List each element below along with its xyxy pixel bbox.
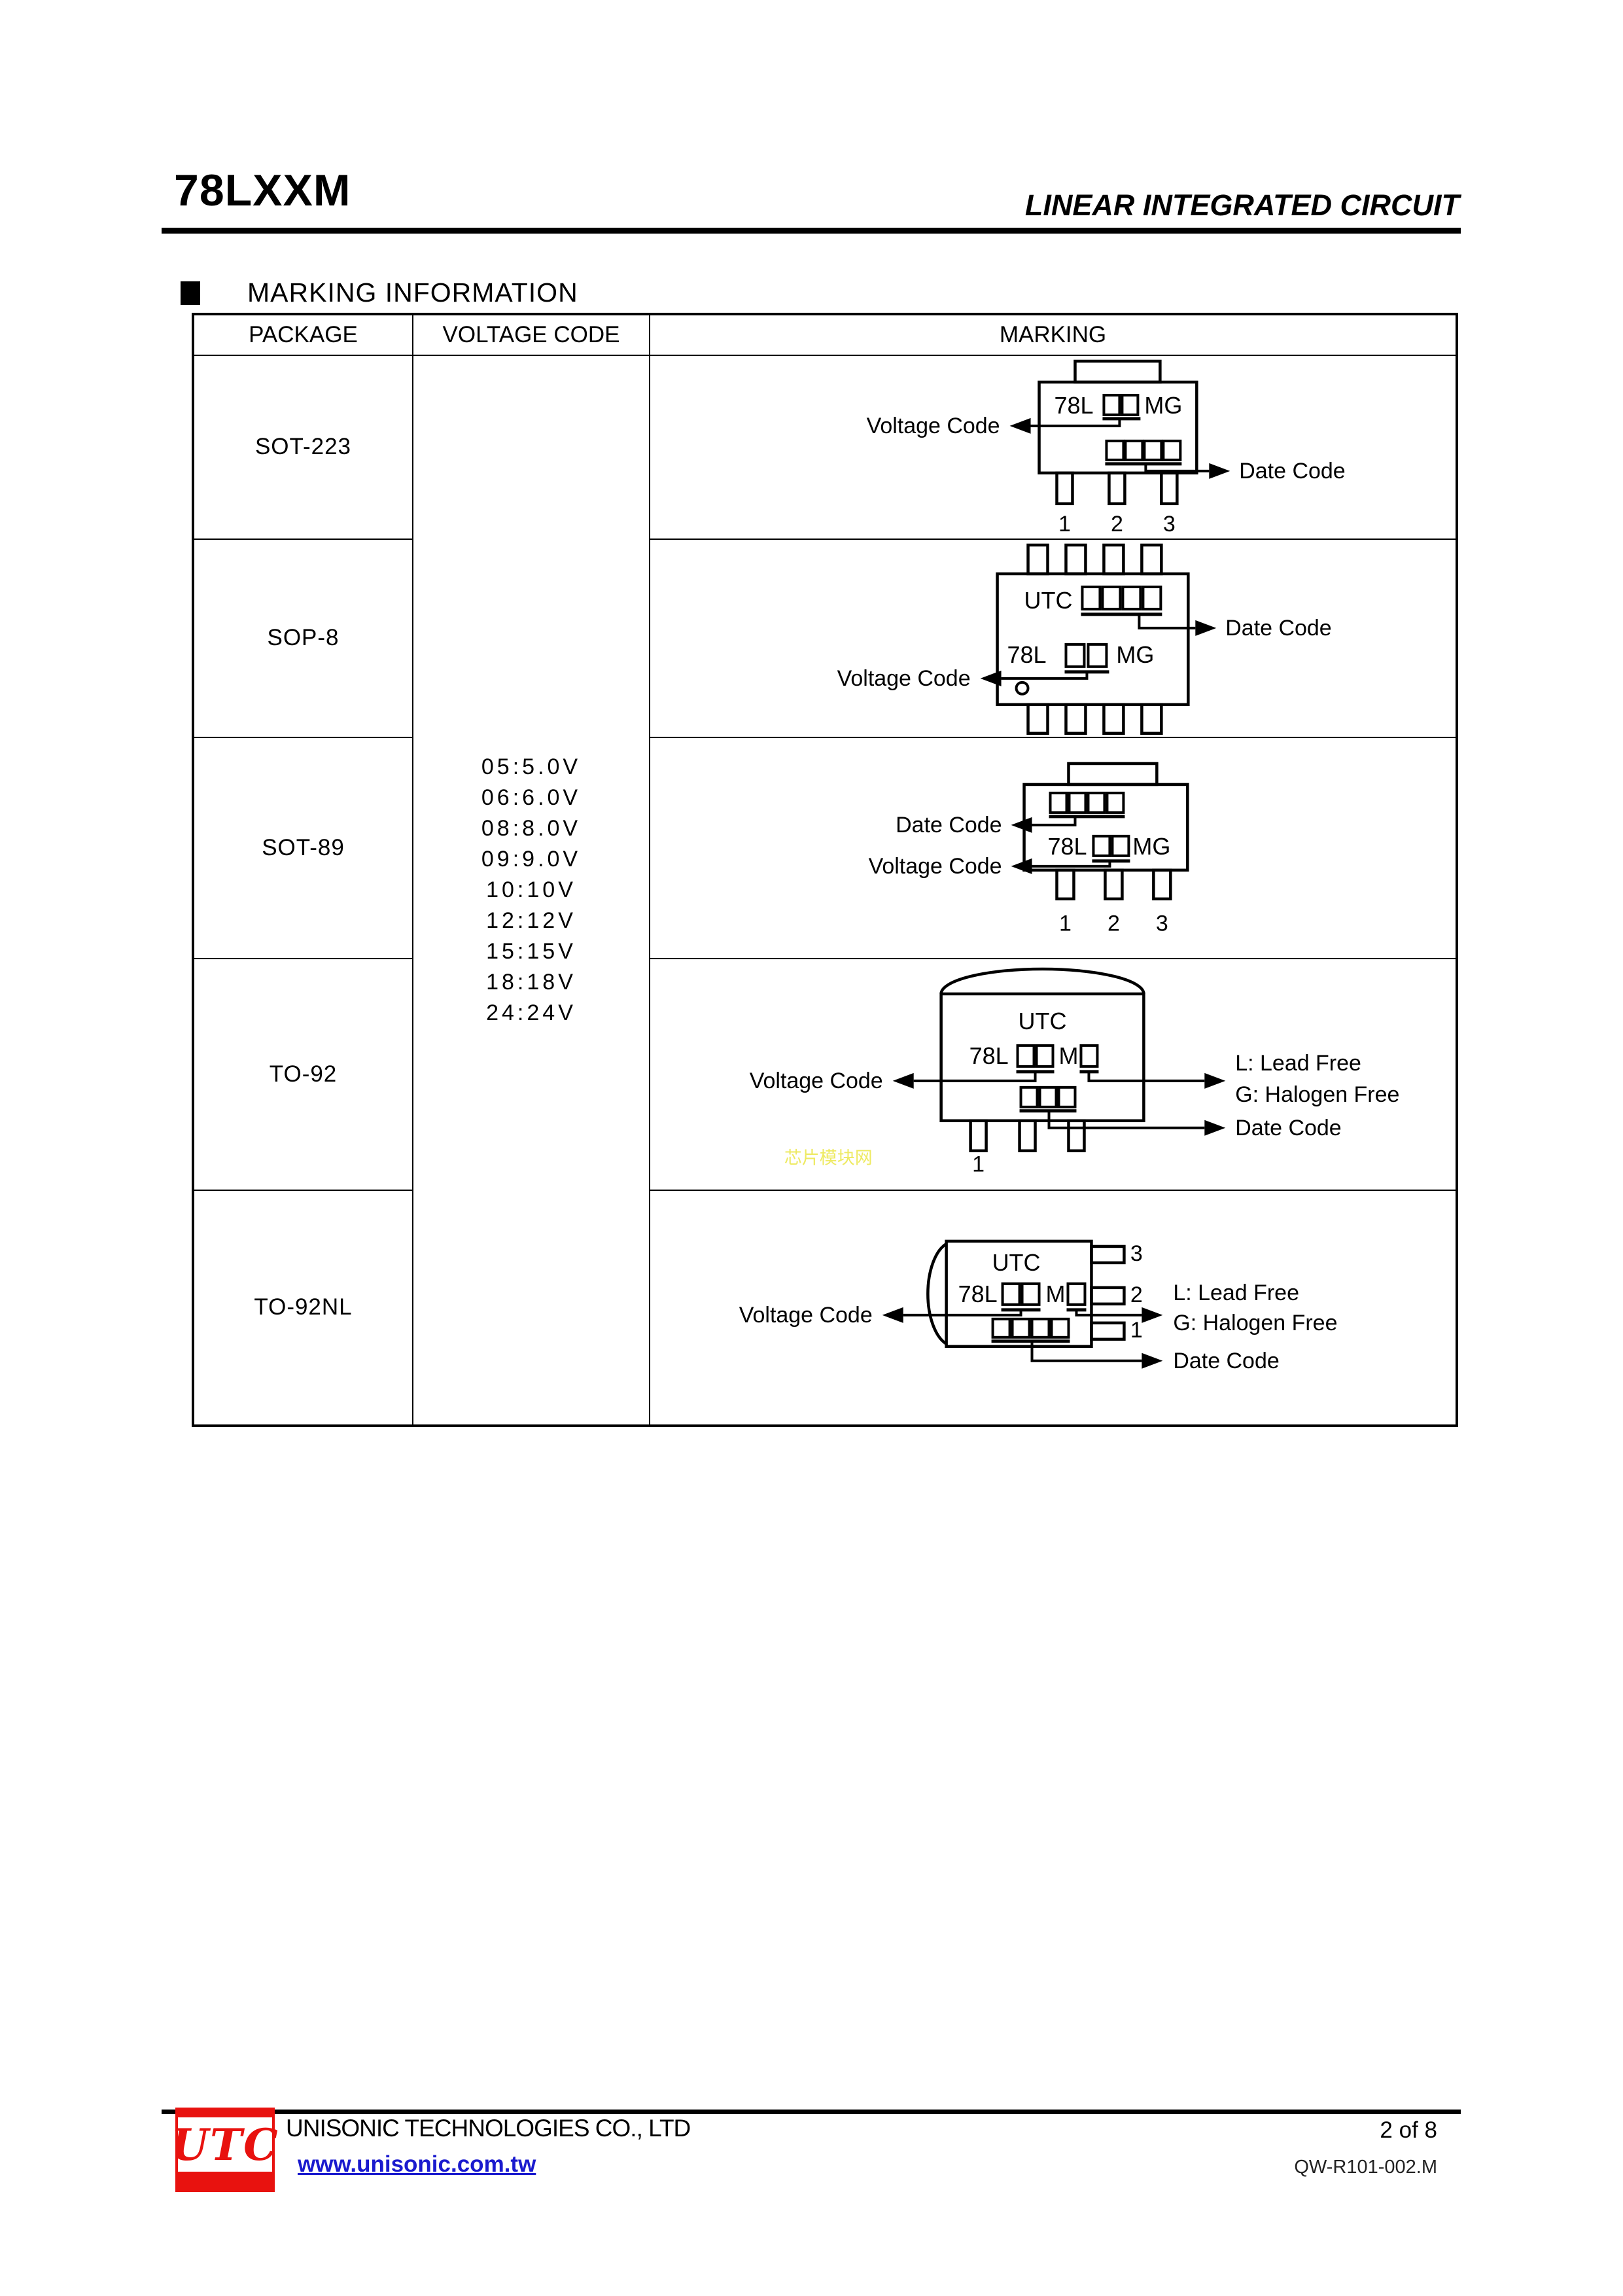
package-name-to92nl: TO-92NL bbox=[193, 1190, 413, 1426]
package-dome bbox=[941, 969, 1144, 994]
lead bbox=[1091, 1323, 1124, 1339]
lead-free-code-box bbox=[1068, 1284, 1085, 1305]
voltage-code-item: 05:5.0V bbox=[414, 752, 648, 783]
package-name-sot223: SOT-223 bbox=[193, 355, 413, 539]
brand-text: UTC bbox=[1024, 587, 1073, 614]
footer-divider bbox=[162, 2110, 1461, 2114]
pin-number: 3 bbox=[1163, 512, 1176, 537]
lead bbox=[1091, 1288, 1124, 1304]
date-code-box bbox=[1052, 1319, 1069, 1337]
lead bbox=[1161, 473, 1177, 504]
date-code-box bbox=[1107, 792, 1123, 812]
date-code-box bbox=[1013, 1319, 1030, 1337]
document-code: QW-R101-002.M bbox=[1294, 2157, 1437, 2178]
package-curved-edge bbox=[928, 1244, 946, 1344]
table-row: SOP-8 UTC Date Code 78 bbox=[193, 539, 1457, 737]
marking-diagram-sot89: Date Code 78L MG Voltage Code 1 2 3 bbox=[650, 737, 1457, 959]
voltage-code-item: 18:18V bbox=[414, 967, 648, 998]
voltage-code-box bbox=[1093, 836, 1109, 855]
table-row: TO-92NL 3 2 1 UTC 78L M bbox=[193, 1190, 1457, 1426]
right-arrowhead-icon bbox=[1142, 1353, 1162, 1369]
voltage-code-label: Voltage Code bbox=[867, 414, 1000, 438]
lead bbox=[1153, 870, 1170, 898]
lead bbox=[1020, 1121, 1036, 1151]
date-arrow-line bbox=[1032, 1341, 1142, 1361]
date-code-label: Date Code bbox=[1173, 1349, 1279, 1373]
table-row: TO-92 UTC 78L M Voltage Code bbox=[193, 959, 1457, 1190]
lead bbox=[1056, 473, 1072, 504]
sop8-drawing: UTC Date Code 78L MG Voltage bbox=[650, 540, 1456, 737]
to92-drawing: UTC 78L M Voltage Code L: Lead Free G: H… bbox=[650, 959, 1456, 1190]
pin bbox=[1028, 705, 1048, 733]
to92nl-drawing: 3 2 1 UTC 78L M Voltage Code L: bbox=[650, 1191, 1456, 1424]
lead-free-label: L: Lead Free bbox=[1173, 1280, 1299, 1305]
lead-free-code-box bbox=[1081, 1046, 1097, 1067]
right-arrowhead-icon bbox=[1209, 463, 1230, 479]
lead-free-arrow-line bbox=[1089, 1072, 1204, 1081]
header-divider bbox=[162, 228, 1461, 234]
pin bbox=[1028, 545, 1048, 574]
brand-text: UTC bbox=[992, 1249, 1041, 1276]
date-code-box bbox=[1125, 441, 1142, 460]
right-arrowhead-icon bbox=[1142, 1307, 1162, 1323]
lead bbox=[1105, 870, 1122, 898]
lead bbox=[1091, 1246, 1124, 1263]
date-code-box bbox=[1143, 587, 1161, 609]
pin-number: 1 bbox=[1058, 512, 1071, 537]
watermark-text: 芯片模块网 bbox=[784, 1148, 873, 1168]
marking-prefix: 78L bbox=[1007, 641, 1047, 668]
datasheet-page: 78LXXM LINEAR INTEGRATED CIRCUIT MARKING… bbox=[0, 0, 1623, 2296]
voltage-code-item: 24:24V bbox=[414, 998, 648, 1029]
voltage-code-box bbox=[1037, 1046, 1053, 1067]
package-name-to92: TO-92 bbox=[193, 959, 413, 1190]
right-arrowhead-icon bbox=[1204, 1073, 1225, 1089]
date-code-box bbox=[1021, 1087, 1038, 1107]
section-title: MARKING INFORMATION bbox=[247, 277, 578, 308]
package-name-sot89: SOT-89 bbox=[193, 737, 413, 959]
pin1-indicator-icon bbox=[1017, 682, 1028, 694]
date-code-label: Date Code bbox=[1239, 459, 1345, 484]
pin bbox=[1066, 545, 1085, 574]
pin bbox=[1104, 545, 1123, 574]
page-number: 2 of 8 bbox=[1380, 2117, 1437, 2144]
square-bullet-icon bbox=[181, 281, 200, 305]
pin-number: 2 bbox=[1130, 1282, 1143, 1307]
table-header-row: PACKAGE VOLTAGE CODE MARKING bbox=[193, 314, 1457, 355]
table-row: SOT-89 Date Code 78L MG bbox=[193, 737, 1457, 959]
pin bbox=[1104, 705, 1123, 733]
voltage-code-box bbox=[1022, 1284, 1039, 1305]
date-code-label: Date Code bbox=[896, 812, 1002, 837]
pin-number: 1 bbox=[1130, 1318, 1143, 1343]
voltage-code-box bbox=[1066, 645, 1084, 667]
voltage-code-label: Voltage Code bbox=[750, 1069, 883, 1093]
voltage-code-box bbox=[1112, 836, 1128, 855]
left-arrowhead-icon bbox=[981, 671, 1002, 686]
halogen-free-label: G: Halogen Free bbox=[1173, 1311, 1337, 1335]
voltage-code-box bbox=[1003, 1284, 1020, 1305]
date-code-box bbox=[1069, 792, 1085, 812]
voltage-code-label: Voltage Code bbox=[739, 1303, 873, 1328]
date-code-box bbox=[1144, 441, 1161, 460]
pin bbox=[1142, 705, 1161, 733]
pin bbox=[1066, 705, 1085, 733]
left-arrowhead-icon bbox=[1010, 418, 1031, 434]
utc-logo: UTC bbox=[175, 2108, 275, 2192]
package-tab bbox=[1075, 361, 1160, 382]
voltage-code-label: Voltage Code bbox=[869, 853, 1002, 878]
marking-prefix: 78L bbox=[1054, 392, 1093, 419]
date-code-label: Date Code bbox=[1225, 616, 1331, 641]
marking-diagram-sop8: UTC Date Code 78L MG Voltage bbox=[650, 539, 1457, 737]
voltage-code-item: 15:15V bbox=[414, 936, 648, 967]
lead bbox=[1109, 473, 1125, 504]
pin-number: 3 bbox=[1130, 1241, 1143, 1266]
date-code-box bbox=[1051, 792, 1067, 812]
package-name-sop8: SOP-8 bbox=[193, 539, 413, 737]
marking-suffix: MG bbox=[1132, 832, 1170, 859]
right-arrowhead-icon bbox=[1204, 1120, 1225, 1136]
lead-free-label: L: Lead Free bbox=[1235, 1051, 1361, 1076]
voltage-code-box bbox=[1104, 395, 1119, 415]
marking-m: M bbox=[1046, 1280, 1066, 1307]
voltage-code-item: 09:9.0V bbox=[414, 844, 648, 875]
pin bbox=[1142, 545, 1161, 574]
voltage-code-item: 06:6.0V bbox=[414, 783, 648, 813]
marking-diagram-to92: UTC 78L M Voltage Code L: Lead Free G: H… bbox=[650, 959, 1457, 1190]
date-code-box bbox=[1040, 1087, 1056, 1107]
date-code-label: Date Code bbox=[1235, 1116, 1341, 1140]
brand-text: UTC bbox=[1019, 1008, 1067, 1034]
date-code-box bbox=[1106, 441, 1123, 460]
lead bbox=[971, 1121, 986, 1151]
left-arrowhead-icon bbox=[893, 1073, 914, 1089]
left-arrowhead-icon bbox=[1011, 817, 1032, 832]
website-link[interactable]: www.unisonic.com.tw bbox=[298, 2151, 536, 2178]
date-code-box bbox=[1123, 587, 1140, 609]
date-code-box bbox=[1163, 441, 1180, 460]
lead bbox=[1068, 1121, 1084, 1151]
marking-suffix: MG bbox=[1116, 641, 1154, 668]
pin-number: 1 bbox=[1059, 911, 1072, 936]
lead bbox=[1056, 870, 1073, 898]
utc-logo-text: UTC bbox=[171, 2119, 279, 2170]
pin-number: 2 bbox=[1108, 911, 1120, 936]
marking-m: M bbox=[1058, 1042, 1078, 1069]
marking-prefix: 78L bbox=[958, 1280, 998, 1307]
pin-number: 2 bbox=[1111, 512, 1123, 537]
left-arrowhead-icon bbox=[882, 1307, 903, 1323]
section-heading: MARKING INFORMATION bbox=[181, 277, 578, 308]
voltage-code-item: 08:8.0V bbox=[414, 813, 648, 844]
date-code-box bbox=[1088, 792, 1104, 812]
date-code-box bbox=[1082, 587, 1100, 609]
marking-diagram-sot223: 78L MG Voltage Code Date Code bbox=[650, 355, 1457, 539]
date-code-box bbox=[1032, 1319, 1049, 1337]
voltage-code-item: 10:10V bbox=[414, 875, 648, 906]
table-row: SOT-223 05:5.0V 06:6.0V 08:8.0V 09:9.0V … bbox=[193, 355, 1457, 539]
date-code-box bbox=[1058, 1087, 1075, 1107]
left-arrowhead-icon bbox=[1011, 858, 1032, 874]
col-header-voltage-code: VOLTAGE CODE bbox=[413, 314, 650, 355]
voltage-code-list: 05:5.0V 06:6.0V 08:8.0V 09:9.0V 10:10V 1… bbox=[413, 355, 650, 1426]
col-header-marking: MARKING bbox=[650, 314, 1457, 355]
company-name: UNISONIC TECHNOLOGIES CO., LTD bbox=[286, 2115, 690, 2142]
doc-type-heading: LINEAR INTEGRATED CIRCUIT bbox=[1025, 188, 1459, 222]
date-code-box bbox=[993, 1319, 1010, 1337]
voltage-code-box bbox=[1122, 395, 1138, 415]
marking-table: PACKAGE VOLTAGE CODE MARKING SOT-223 05:… bbox=[192, 313, 1458, 1427]
page-title: 78LXXM bbox=[174, 165, 351, 216]
sot223-drawing: 78L MG Voltage Code Date Code bbox=[650, 356, 1456, 539]
right-arrowhead-icon bbox=[1195, 620, 1216, 636]
halogen-free-label: G: Halogen Free bbox=[1235, 1082, 1399, 1107]
package-tab bbox=[1068, 763, 1157, 784]
utc-logo-band: UTC bbox=[178, 2117, 272, 2172]
voltage-code-item: 12:12V bbox=[414, 906, 648, 936]
voltage-code-label: Voltage Code bbox=[837, 666, 971, 691]
col-header-package: PACKAGE bbox=[193, 314, 413, 355]
marking-suffix: MG bbox=[1144, 392, 1182, 419]
voltage-code-box bbox=[1018, 1046, 1034, 1067]
marking-prefix: 78L bbox=[1048, 832, 1087, 859]
marking-prefix: 78L bbox=[969, 1042, 1009, 1069]
marking-diagram-to92nl: 3 2 1 UTC 78L M Voltage Code L: bbox=[650, 1190, 1457, 1426]
pin-number: 1 bbox=[972, 1152, 985, 1177]
voltage-code-box bbox=[1088, 645, 1106, 667]
pin-number: 3 bbox=[1156, 911, 1168, 936]
date-code-box bbox=[1102, 587, 1120, 609]
sot89-drawing: Date Code 78L MG Voltage Code 1 2 3 bbox=[650, 738, 1456, 959]
